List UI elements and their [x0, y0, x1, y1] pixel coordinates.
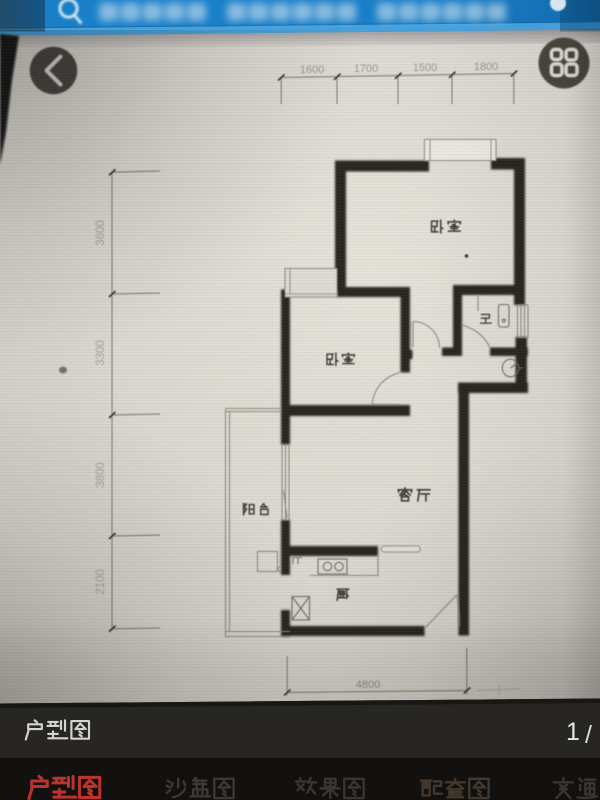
svg-text:/: / [585, 721, 592, 749]
svg-text:1: 1 [566, 718, 580, 746]
